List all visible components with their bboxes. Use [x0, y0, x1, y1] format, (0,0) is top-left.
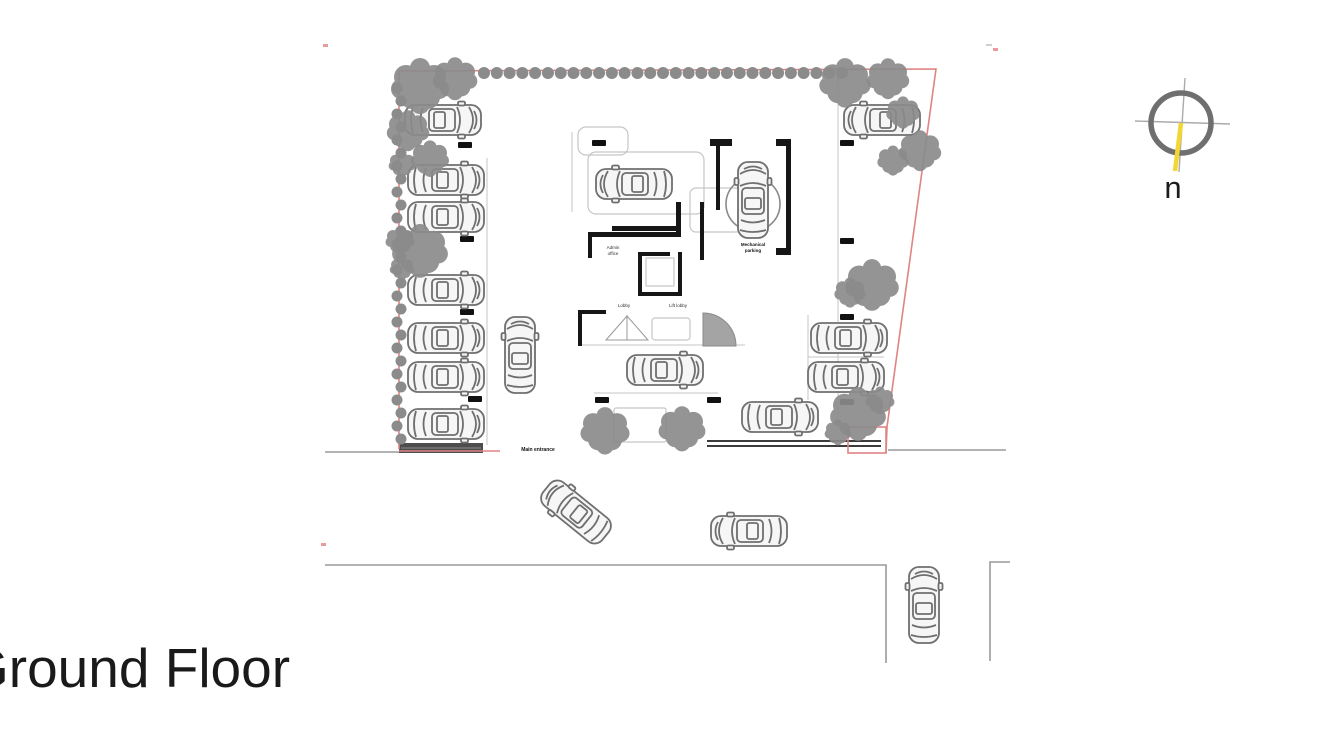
room-label: parking [745, 248, 762, 253]
hedge-bush [568, 67, 580, 79]
parking-tick [458, 142, 472, 148]
hedge-bush [619, 67, 631, 79]
hedge-bush [708, 67, 720, 79]
car [502, 317, 539, 393]
car [596, 166, 672, 203]
boundary-bush [396, 304, 407, 315]
parking-tick [468, 396, 482, 402]
room-outline [652, 318, 690, 340]
building-wall [588, 232, 654, 237]
boundary-bush [396, 330, 407, 341]
boundary-bush [392, 421, 403, 432]
north-compass: n [1135, 78, 1230, 205]
floor-title: Ground Floor [0, 636, 290, 700]
hedge-bush [491, 67, 503, 79]
parking-tick [460, 236, 474, 242]
car [711, 513, 787, 550]
hedge-bush [542, 67, 554, 79]
gray-corner-mark [986, 44, 992, 46]
hedge-bush [644, 67, 656, 79]
hedge-bush [683, 67, 695, 79]
room-label: Mechanical [741, 242, 765, 247]
boundary-bush [392, 213, 403, 224]
hedge-bush [580, 67, 592, 79]
hedge-bush [504, 67, 516, 79]
hedge-bush [529, 67, 541, 79]
building-wall [638, 252, 642, 296]
hedge-bush [734, 67, 746, 79]
stair-fan [703, 313, 736, 346]
car [408, 359, 484, 396]
parking-tick [840, 140, 854, 146]
boundary-bush [392, 343, 403, 354]
parking-tick [595, 397, 609, 403]
room-label: office [608, 251, 619, 256]
parking-tick [840, 238, 854, 244]
boundary-bush [392, 291, 403, 302]
tree [580, 407, 629, 454]
car [535, 474, 617, 551]
site-plan: AdminofficeLobbyLift lobbyMechanicalpark… [0, 0, 1342, 754]
parking-tick [460, 309, 474, 315]
hedge-bush [721, 67, 733, 79]
boundary-bush [396, 356, 407, 367]
boundary-bush [392, 187, 403, 198]
car [408, 406, 484, 443]
boundary-bush [396, 382, 407, 393]
car [735, 162, 772, 238]
hedge-bush [798, 67, 810, 79]
tree [819, 58, 870, 108]
parking-tick [592, 140, 606, 146]
car [906, 567, 943, 643]
boundary-bush [392, 369, 403, 380]
building-wall [776, 248, 791, 255]
building-wall [700, 202, 704, 260]
door-swing [606, 316, 627, 340]
building-wall [588, 232, 592, 258]
boundary-bush [392, 317, 403, 328]
parking-tick [707, 397, 721, 403]
parking-tick [840, 314, 854, 320]
boundary-bush [392, 395, 403, 406]
site-plan-drawing: AdminofficeLobbyLift lobbyMechanicalpark… [321, 44, 1010, 663]
building-wall [710, 139, 732, 146]
building-wall [786, 139, 791, 255]
red-corner-mark [321, 543, 326, 546]
room-outline [646, 258, 674, 286]
building-wall [638, 292, 682, 296]
hedge-bush [759, 67, 771, 79]
room-label: Main entrance [521, 447, 555, 453]
room-label: Lift lobby [669, 303, 688, 308]
building-wall [578, 310, 582, 346]
hedge-bush [593, 67, 605, 79]
room-label: Admin [607, 245, 620, 250]
hedge-bush [747, 67, 759, 79]
building-wall [776, 139, 791, 146]
road-line [325, 565, 886, 663]
car [808, 359, 884, 396]
car [627, 352, 703, 389]
building-wall [578, 310, 606, 314]
hedge-bush [631, 67, 643, 79]
car [742, 399, 818, 436]
hedge-bush [810, 67, 822, 79]
road-line [990, 562, 1010, 661]
red-corner-mark [323, 44, 328, 47]
hedge-bush [695, 67, 707, 79]
tree [867, 58, 909, 99]
building-wall [676, 202, 681, 237]
hedge-bush [478, 67, 490, 79]
hedge-bush [555, 67, 567, 79]
red-corner-mark [993, 48, 998, 51]
car [408, 320, 484, 357]
building-wall [652, 232, 681, 237]
compass-north-label: n [1164, 170, 1181, 205]
hedge-bush [516, 67, 528, 79]
boundary-bush [396, 200, 407, 211]
hedge-bush [606, 67, 618, 79]
hedge-bush [772, 67, 784, 79]
door-swing [627, 316, 648, 340]
building-wall [638, 252, 670, 256]
boundary-bush [396, 434, 407, 445]
boundary-bush [396, 408, 407, 419]
building-wall [678, 252, 682, 296]
hedge-bush [670, 67, 682, 79]
building-wall [716, 146, 720, 210]
hedge-bush [785, 67, 797, 79]
building-wall [612, 226, 680, 231]
room-label: Lobby [618, 303, 631, 308]
hedge-bush [657, 67, 669, 79]
car [811, 320, 887, 357]
